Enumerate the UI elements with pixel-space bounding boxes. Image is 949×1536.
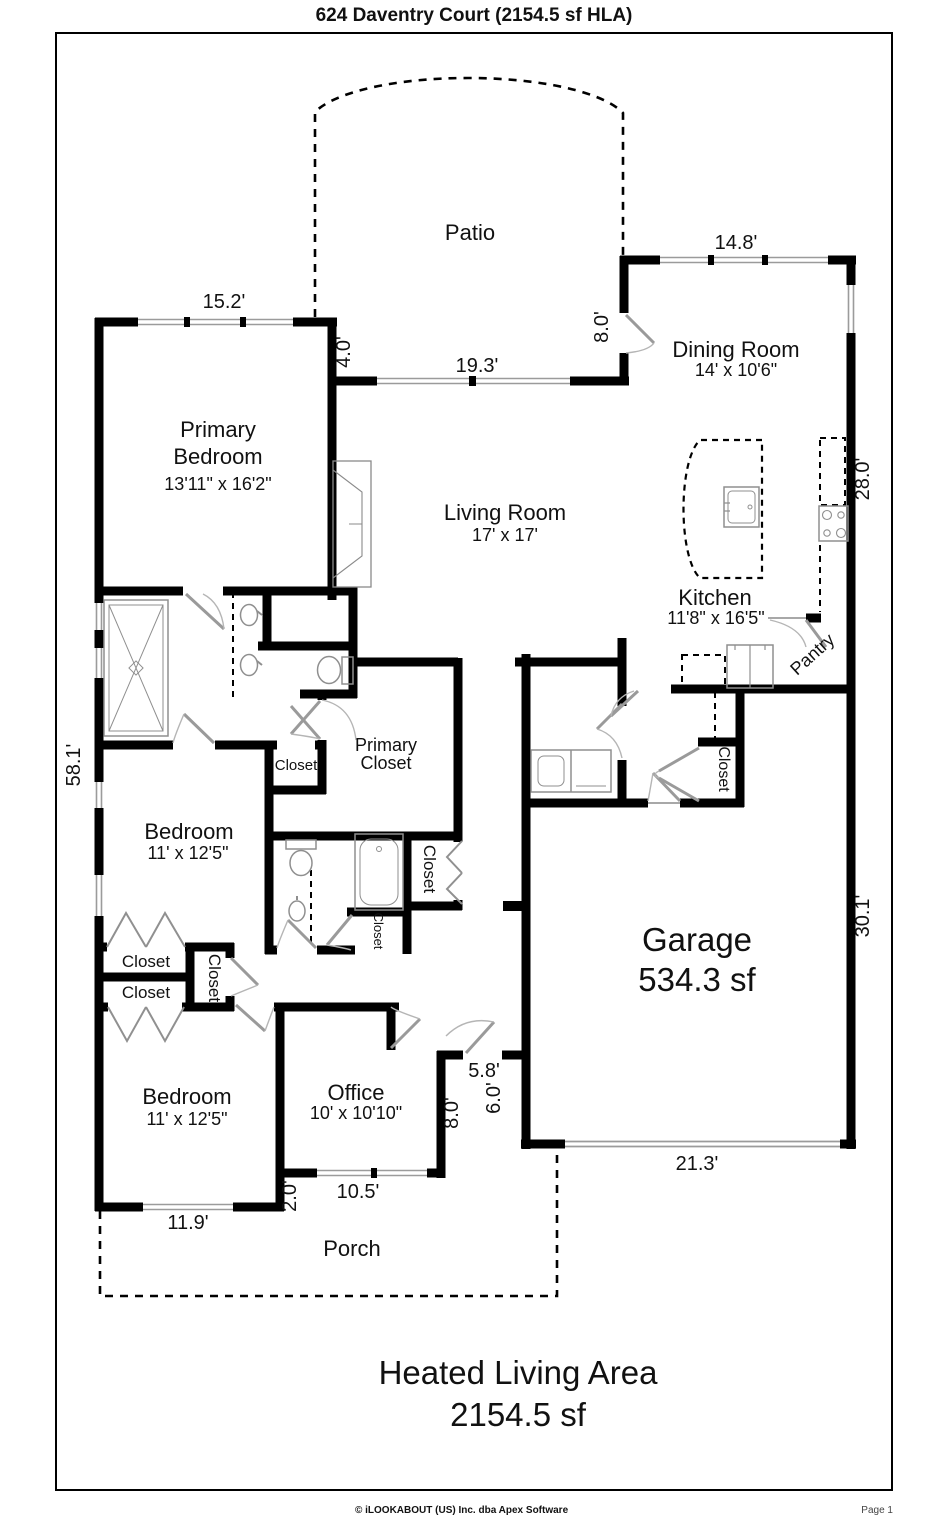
dim-west-side: 58.1'	[63, 744, 85, 787]
living-room-label: Living Room	[444, 500, 566, 525]
dim-patio-east: 8.0'	[591, 311, 613, 343]
window-dining-top	[660, 255, 828, 266]
pantry-label: Pantry	[786, 629, 838, 679]
window-office-bottom	[317, 1168, 427, 1179]
kitchen-counter-dashed	[820, 438, 845, 505]
heated-living-area-label: Heated Living Area	[379, 1354, 659, 1391]
wc-toilet	[318, 657, 354, 685]
hall-closet-door-leaf	[231, 958, 258, 985]
garage-label: Garage	[642, 921, 752, 958]
hall-closet-upper-label: Closet	[122, 952, 170, 971]
dim-office-jog: 2.0'	[279, 1180, 301, 1212]
front-door-leaf	[466, 1022, 494, 1053]
mud-closet-leaf-a	[659, 748, 699, 771]
hall-closet-lower-label: Closet	[122, 983, 170, 1002]
primary-bedroom-label-2: Bedroom	[173, 444, 262, 469]
tub-closet-door-leaf	[327, 915, 352, 945]
linen-closet-label: Closet	[275, 757, 318, 774]
dim-garage-east: 30.1'	[852, 895, 874, 938]
kitchen-size: 11'8" x 16'5"	[667, 608, 764, 628]
office-label: Office	[327, 1080, 384, 1105]
page-border	[56, 33, 892, 1490]
page-title: 624 Daventry Court (2154.5 sf HLA)	[316, 5, 633, 26]
heated-living-area-value: 2154.5 sf	[450, 1396, 587, 1433]
primary-bedroom-label-1: Primary	[180, 417, 256, 442]
dim-primary-east: 4.0'	[333, 336, 355, 368]
bedroom-mid-size: 11' x 12'5"	[148, 843, 229, 863]
dim-east-upper: 28.0'	[852, 458, 874, 501]
window-bedroom-bottom	[143, 1202, 233, 1213]
primary-closet-leaf-a	[291, 701, 320, 734]
floorplan-page: 624 Daventry Court (2154.5 sf HLA)	[0, 0, 949, 1536]
garage-area: 534.3 sf	[638, 961, 756, 998]
closet-lower-bifold	[108, 1007, 146, 1041]
dim-dining-top: 14.8'	[715, 232, 758, 254]
bathtub-fixture	[355, 834, 403, 910]
bath-closet-label: Closet	[420, 845, 439, 893]
laundry-door-leaf	[597, 704, 622, 729]
dim-entry-width: 5.8'	[468, 1060, 500, 1082]
primary-closet-label-1: Primary	[355, 735, 417, 755]
bedroom-mid-door-leaf	[184, 714, 214, 743]
bedroom-front-door-leaf	[236, 1005, 265, 1031]
bath-closet-bifold2	[447, 873, 462, 904]
dining-room-label: Dining Room	[672, 337, 799, 362]
fireplace-fixture	[333, 461, 371, 587]
window-primary-top	[138, 317, 293, 328]
closet-lower-bifold2	[146, 1007, 184, 1041]
floorplan-drawing: 624 Daventry Court (2154.5 sf HLA)	[0, 0, 949, 1536]
island-sink	[724, 487, 759, 527]
mud-closet-label: Closet	[715, 746, 732, 792]
patio-outline	[315, 78, 623, 317]
window-patio-wall	[377, 376, 570, 387]
washer-dryer	[531, 750, 611, 792]
garage-door	[565, 1139, 840, 1150]
dim-garage-bottom: 21.3'	[676, 1153, 719, 1175]
garage-wall-stub	[503, 901, 526, 911]
dining-room-size: 14' x 10'6"	[695, 360, 777, 380]
primary-bedroom-size: 13'11" x 16'2"	[164, 474, 271, 494]
footer: © iLOOKABOUT (US) Inc. dba Apex Software…	[355, 1505, 893, 1516]
primary-closet-label-2: Closet	[360, 753, 411, 773]
tub-closet-label: Closet	[371, 913, 386, 950]
dim-office-bottom: 10.5'	[337, 1181, 380, 1203]
patio-label: Patio	[445, 220, 495, 245]
dim-primary-top: 15.2'	[203, 291, 246, 313]
office-size: 10' x 10'10"	[310, 1103, 402, 1123]
kitchen-label: Kitchen	[678, 585, 751, 610]
bedroom-front-size: 11' x 12'5"	[147, 1109, 228, 1129]
closet-upper-bifold2	[146, 913, 185, 947]
vanity-sinks	[241, 605, 263, 676]
bedroom-front-label: Bedroom	[142, 1084, 231, 1109]
closet-upper-bifold	[107, 913, 146, 947]
kitchen-cabinet-dashed	[682, 655, 725, 686]
bath-closet-bifold	[447, 841, 462, 873]
bath-door-leaf	[288, 920, 316, 948]
dim-bedroom-bottom: 11.9'	[167, 1212, 208, 1234]
hall-closet-vertical-label: Closet	[205, 954, 224, 1002]
footer-page-number: Page 1	[861, 1505, 893, 1516]
hall-sink	[289, 896, 305, 921]
window-dining-east	[846, 285, 857, 333]
dim-patio-wall: 19.3'	[456, 355, 499, 377]
dim-entry-side: 8.0'	[441, 1097, 463, 1129]
shower-fixture	[104, 600, 168, 736]
refrigerator-fixture	[727, 645, 773, 688]
living-room-size: 17' x 17'	[472, 525, 538, 545]
primary-door-leaf	[186, 594, 224, 629]
stove-fixture	[819, 506, 848, 541]
footer-copyright: © iLOOKABOUT (US) Inc. dba Apex Software	[355, 1505, 569, 1516]
patio-door-leaf	[626, 315, 654, 343]
dim-entry-depth: 6.0'	[483, 1082, 505, 1114]
patio-door-opening	[619, 313, 630, 353]
porch-label: Porch	[323, 1236, 380, 1261]
labels-layer: Patio Primary Bedroom 13'11" x 16'2" Liv…	[122, 220, 838, 1433]
bedroom-mid-label: Bedroom	[144, 819, 233, 844]
